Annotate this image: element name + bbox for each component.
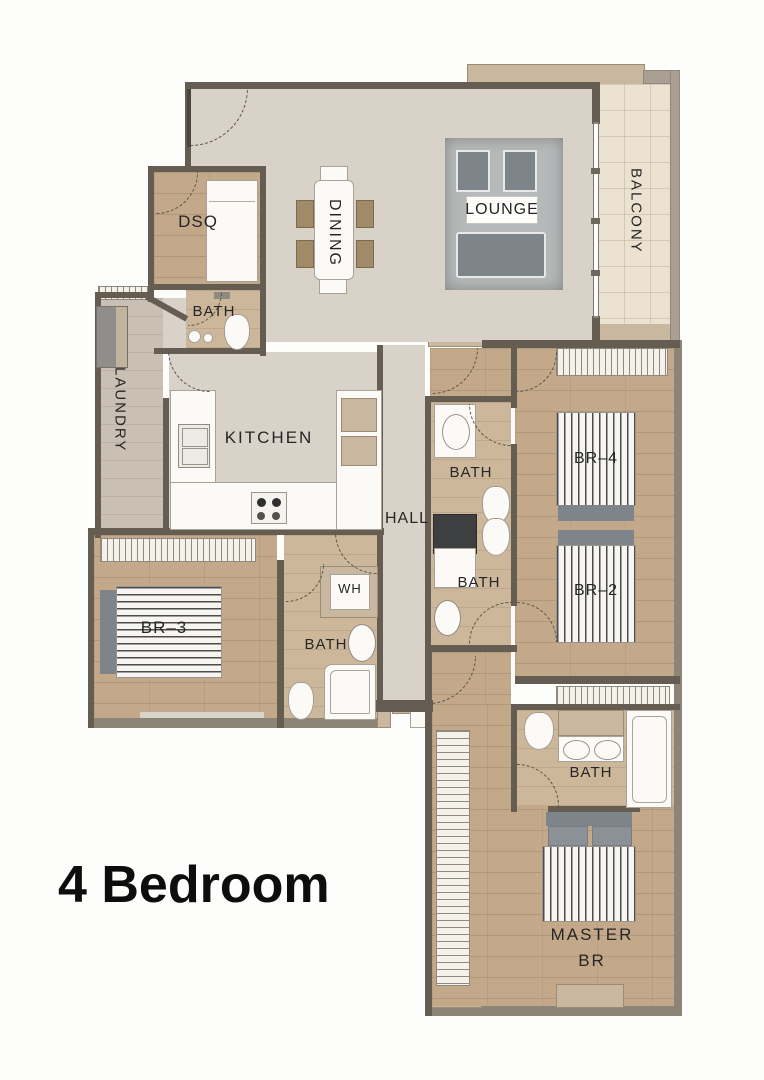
laundry-label: LAUNDRY: [104, 346, 136, 474]
wall: [430, 396, 515, 402]
master-label-line2: BR: [536, 950, 648, 972]
wall: [515, 676, 680, 684]
sink-symbol: [188, 330, 201, 343]
master-wardrobe: [436, 730, 470, 986]
dining-chair: [356, 200, 374, 228]
shower: [324, 664, 376, 720]
wall: [260, 166, 266, 356]
wall: [592, 82, 600, 124]
wall: [277, 560, 284, 728]
kitchen-label: KITCHEN: [218, 426, 320, 450]
vanity-counter: [558, 710, 624, 736]
window-sill: [140, 712, 264, 718]
br3-bed-headboard: [100, 590, 117, 674]
master-bath-label: BATH: [556, 762, 626, 782]
balcony-parapet: [670, 70, 680, 352]
kitchen-sink: [178, 424, 210, 468]
sofa: [456, 232, 546, 278]
br4-closet: [556, 348, 668, 376]
toilet-symbol: [524, 712, 554, 750]
sink-symbol: [434, 600, 461, 636]
stove: [251, 492, 287, 524]
lounge-label: LOUNGE: [466, 196, 538, 224]
door-handle: [591, 168, 600, 174]
wall: [370, 700, 433, 712]
hall-label: HALL: [379, 508, 435, 530]
double-sink: [558, 736, 624, 762]
br4-label: BR–4: [560, 448, 632, 470]
br2-bed-pillow: [558, 530, 634, 546]
wall: [163, 398, 169, 530]
master-bed-headboard: [546, 812, 632, 826]
master-bath-window: [556, 686, 670, 706]
wall: [88, 528, 94, 728]
br4-bed-footer: [558, 505, 634, 521]
bathtub: [626, 710, 672, 808]
armchair: [503, 150, 537, 192]
wall: [148, 284, 266, 290]
br2-label: BR–2: [560, 580, 632, 602]
pillow: [548, 826, 588, 846]
master-label-line1: MASTER: [536, 924, 648, 946]
wall: [148, 166, 154, 302]
master-bed: [542, 846, 636, 922]
br3-closet: [100, 538, 256, 562]
toilet-symbol: [288, 682, 314, 720]
kitchen-appliance: [341, 436, 377, 466]
wall: [430, 645, 515, 652]
br3-label: BR–3: [122, 616, 206, 640]
dining-chair: [319, 278, 347, 294]
bath-upper-label: BATH: [438, 462, 504, 482]
dining-chair: [356, 240, 374, 268]
wall: [425, 652, 432, 1016]
toilet-symbol: [482, 518, 510, 556]
door-handle: [591, 218, 600, 224]
dining-label: DINING: [316, 188, 352, 278]
sink-symbol: [203, 333, 213, 343]
wh-label: WH: [330, 578, 370, 598]
pillow: [592, 826, 632, 846]
dresser: [556, 984, 624, 1008]
door-handle: [591, 270, 600, 276]
bath-lower-label: BATH: [446, 572, 512, 592]
fridge: [341, 398, 377, 432]
balcony-label: BALCONY: [618, 156, 654, 266]
dsq-label: DSQ: [166, 208, 230, 236]
wall: [511, 396, 517, 408]
dining-chair: [296, 240, 314, 268]
dsq-bath-label: BATH: [182, 300, 246, 322]
br3-bath-label: BATH: [292, 634, 360, 654]
floor-plan: DSQ DINING LOUNGE BALCONY BATH LAUNDRY K…: [0, 0, 764, 1080]
armchair: [456, 150, 490, 192]
wall: [592, 316, 600, 348]
dining-chair: [296, 200, 314, 228]
plan-title: 4 Bedroom: [58, 846, 392, 924]
